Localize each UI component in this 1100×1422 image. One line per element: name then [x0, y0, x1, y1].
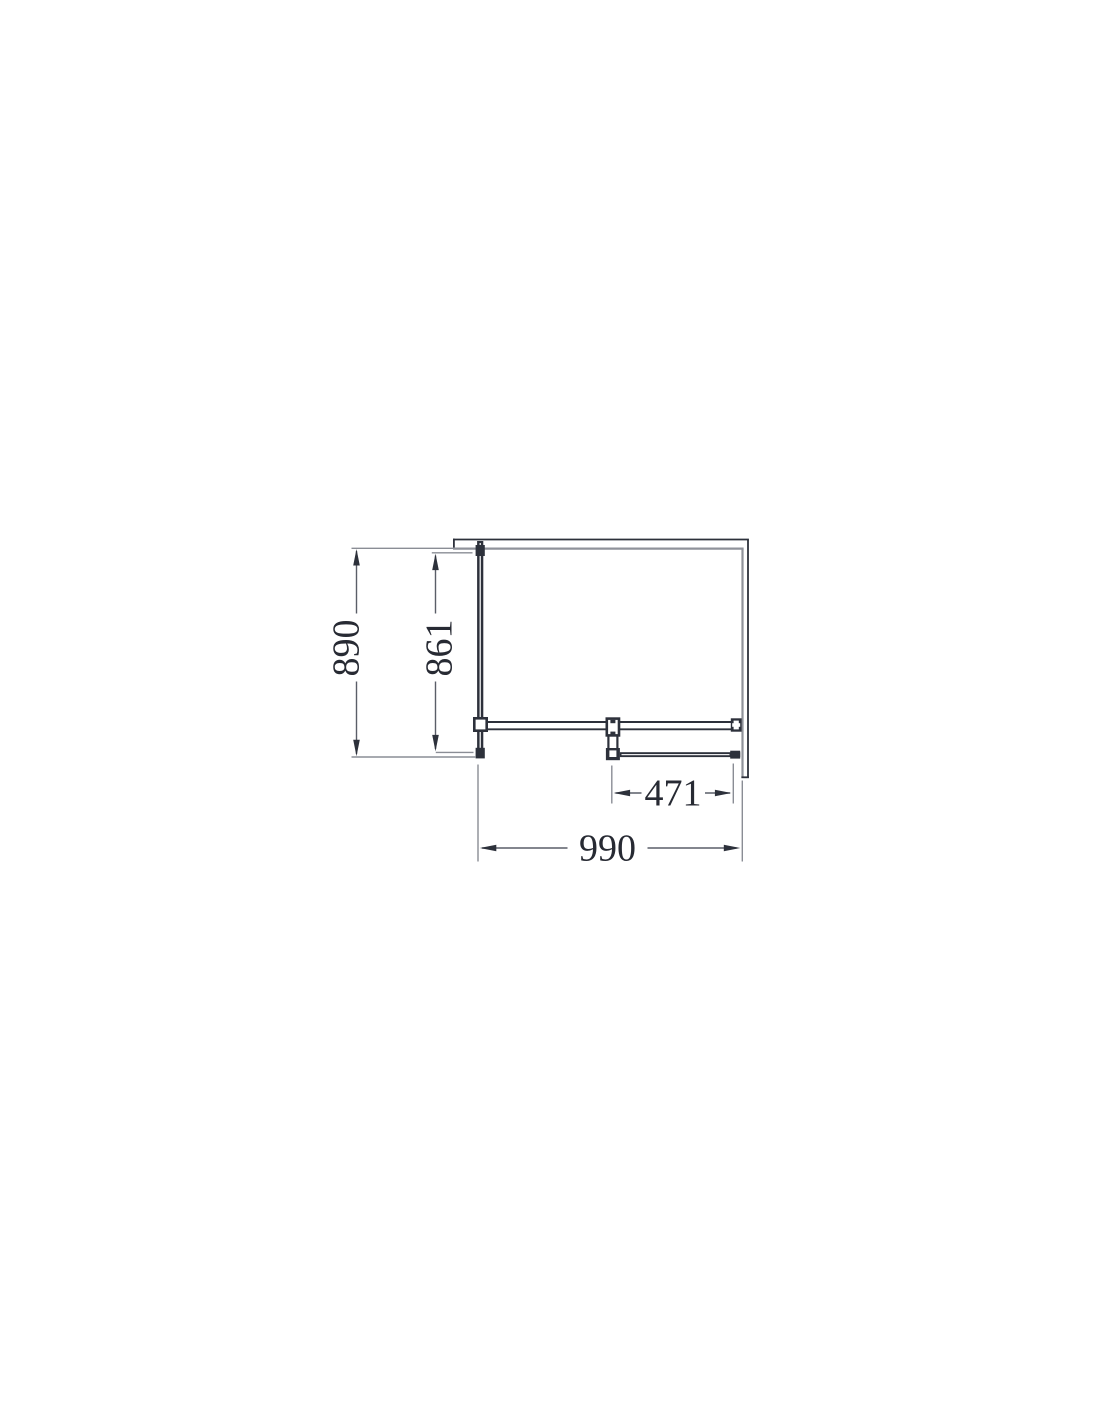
dim-890-arrow-up-icon [353, 549, 360, 566]
dim-890-label: 890 [326, 620, 368, 677]
door-panel [620, 751, 740, 759]
rail-bracket-right-cutout-h [732, 723, 740, 727]
dim-861-arrow-down-icon [432, 735, 439, 752]
hinge-connector [606, 719, 620, 761]
dim-890-arrow-down-icon [353, 740, 360, 757]
shower-enclosure-plan-drawing: 890 861 990 [0, 0, 1100, 1422]
dim-990-arrow-left-icon [480, 845, 497, 852]
door-panel-end-cap [730, 751, 740, 759]
dim-861-label: 861 [419, 620, 461, 677]
wall-top [453, 539, 749, 549]
dim-overall-width: 990 [478, 765, 742, 870]
dim-471-arrow-right-icon [715, 790, 732, 797]
wall-right [741, 540, 749, 779]
hinge-lower-cutout [609, 750, 616, 757]
dim-471-label: 471 [645, 773, 702, 815]
dim-door-width: 471 [612, 764, 734, 815]
hinge-upper-notch-top [610, 720, 615, 723]
side-panel-bottom-cap [476, 748, 485, 759]
side-panel-top-cap [476, 545, 485, 556]
rail-bracket-left [474, 718, 486, 730]
dim-990-label: 990 [579, 828, 636, 870]
dim-861-arrow-up-icon [432, 554, 439, 571]
drawing-canvas: 890 861 990 [0, 0, 1100, 1422]
door-panel-band-centerline [622, 754, 730, 755]
hinge-upper-notch-bottom [610, 732, 615, 735]
dim-panel-depth: 861 [419, 553, 474, 753]
dim-990-arrow-right-icon [724, 845, 741, 852]
rail-bracket-right [731, 718, 742, 731]
dim-471-arrow-left-icon [614, 790, 631, 797]
